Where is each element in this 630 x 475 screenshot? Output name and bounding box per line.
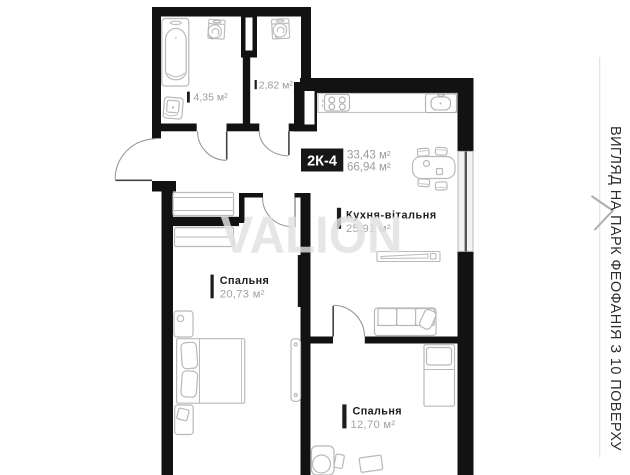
svg-text:20,73 м²: 20,73 м² bbox=[220, 288, 265, 300]
svg-text:66,94 м²: 66,94 м² bbox=[347, 161, 391, 173]
svg-text:VALION: VALION bbox=[221, 207, 403, 265]
svg-text:2К-4: 2К-4 bbox=[307, 154, 337, 170]
svg-text:ВИГЛЯД НА ПАРК ФЕОФАНІЯ З 10 П: ВИГЛЯД НА ПАРК ФЕОФАНІЯ З 10 ПОВЕРХУ bbox=[607, 126, 623, 451]
svg-text:Спальня: Спальня bbox=[220, 275, 269, 287]
svg-text:2,82 м²: 2,82 м² bbox=[259, 80, 294, 92]
svg-text:12,70 м²: 12,70 м² bbox=[351, 419, 396, 431]
svg-text:Спальня: Спальня bbox=[353, 406, 402, 418]
svg-text:4,35 м²: 4,35 м² bbox=[194, 92, 229, 104]
svg-text:33,43 м²: 33,43 м² bbox=[347, 150, 391, 162]
